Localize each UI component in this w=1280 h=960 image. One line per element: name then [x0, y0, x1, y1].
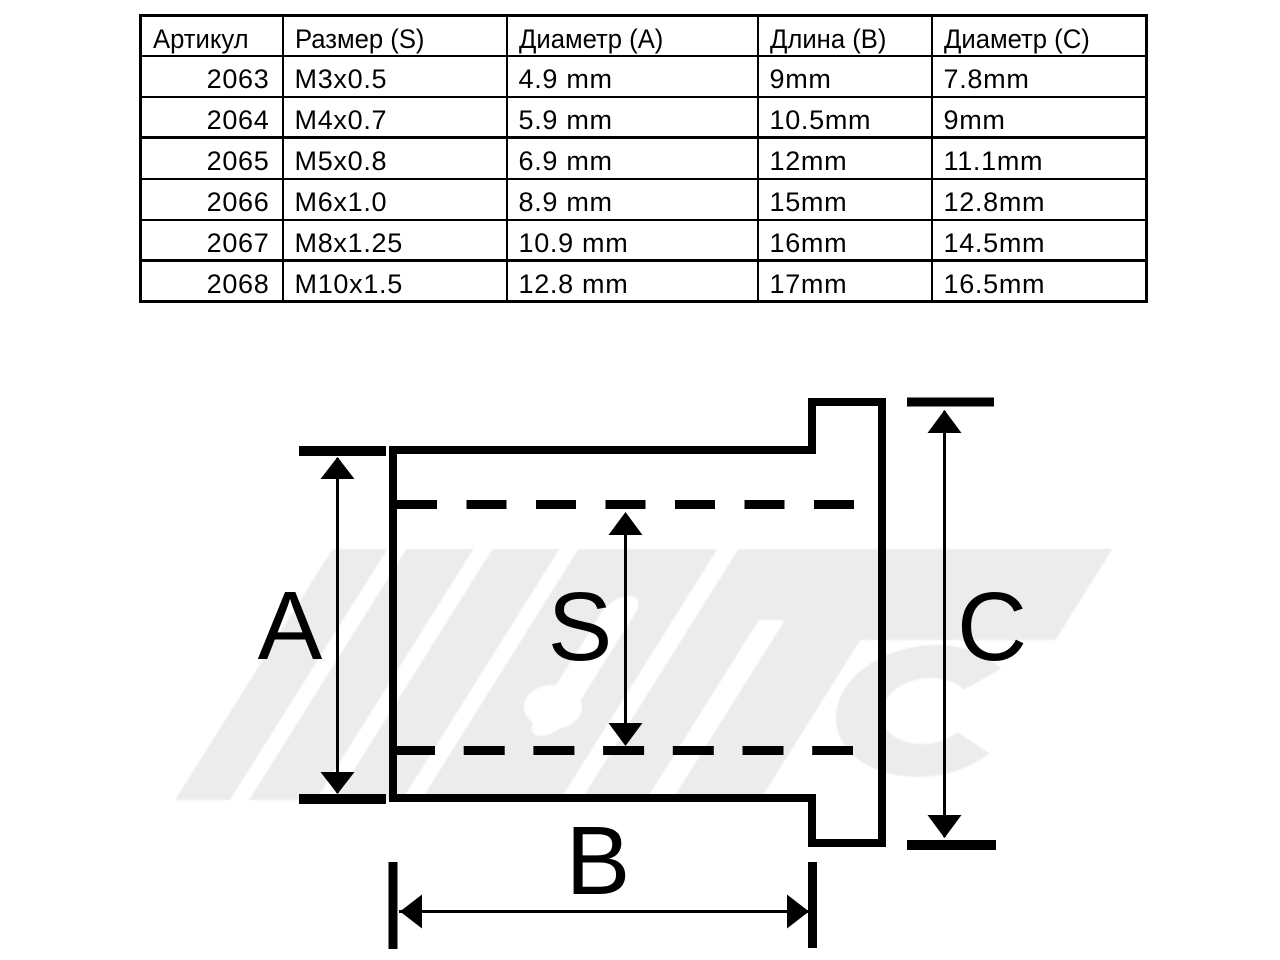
svg-text:B: B	[566, 806, 631, 915]
svg-text:S: S	[548, 572, 613, 681]
svg-text:C: C	[957, 572, 1027, 681]
svg-text:A: A	[258, 571, 323, 680]
